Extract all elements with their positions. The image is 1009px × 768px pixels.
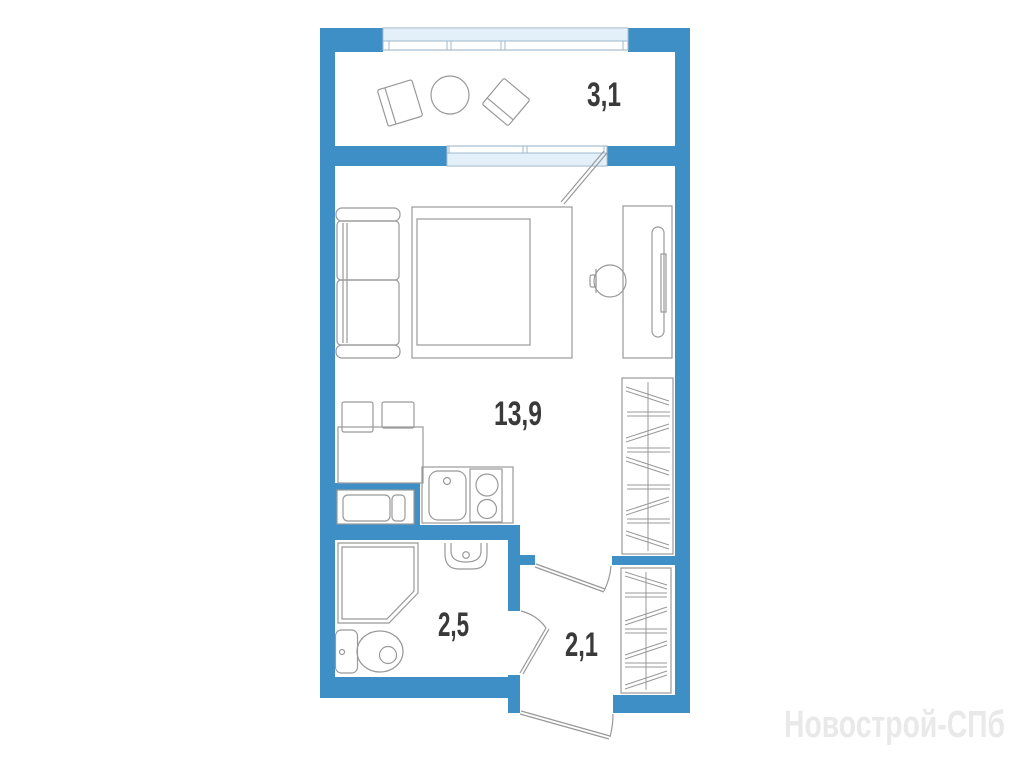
toilet-symbol [336,630,404,673]
door-bathroom-symbol [520,611,549,674]
balcony-round-table-symbol [431,76,469,114]
kitchen-sink-symbol [429,471,466,520]
area-label-bathroom: 2,5 [438,606,469,644]
area-label-hallway: 2,1 [565,626,598,664]
balcony-outer-window [383,28,628,50]
wardrobe-room-symbol [622,378,673,554]
watermark-text: Новострой-СПб [784,704,1005,746]
washing-machine-niche-symbol [337,490,414,524]
kitchen-table-symbol [338,427,423,483]
washbasin-symbol [445,543,487,569]
door-room-hallway-symbol [535,564,611,592]
balcony-inner-window-door [447,146,607,204]
floor-plan: 3,1 13,9 2,5 2,1 Новострой-СПб [0,0,1009,768]
double-bed-symbol [412,207,572,358]
door-entrance-symbol [520,711,613,739]
balcony-chair-left-symbol [377,80,423,127]
floorplan-page: 3,1 13,9 2,5 2,1 Новострой-СПб [0,0,1009,768]
desk-chair-symbol [590,265,626,297]
desk-symbol [623,206,672,358]
area-label-living-room: 13,9 [494,395,542,433]
sofa-symbol [336,208,400,358]
wardrobe-hallway-symbol [621,568,671,693]
balcony-chair-right-symbol [482,78,530,126]
shower-cabin-symbol [338,543,418,623]
kitchen-counter-symbol [422,467,513,523]
area-label-balcony: 3,1 [587,76,621,114]
stove-symbol [470,469,502,522]
